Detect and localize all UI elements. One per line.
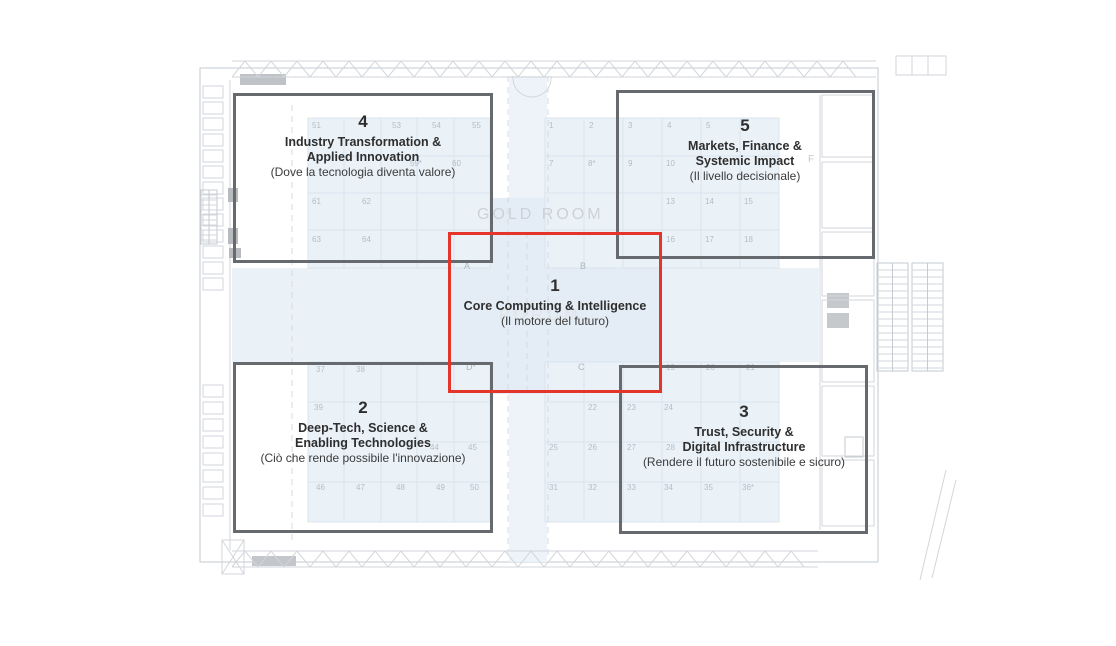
- zone-5-title-1: Markets, Finance &: [625, 139, 865, 154]
- zone-2-number: 2: [232, 398, 494, 418]
- booth-number-label: 31: [549, 484, 558, 492]
- booth-number-label: 8*: [588, 160, 596, 168]
- gold-room-label: GOLD ROOM: [477, 206, 604, 224]
- floor-plan-diagram: GOLD ROOM FORUM F 5153545559*60616263641…: [0, 0, 1116, 646]
- booth-number-label: 26: [588, 444, 597, 452]
- zone-5-number: 5: [625, 116, 865, 136]
- booth-number-label: 2: [589, 122, 593, 130]
- zone-2-title-1: Deep-Tech, Science &: [232, 421, 494, 436]
- zone-4-title-1: Industry Transformation &: [233, 135, 493, 150]
- zone-2-title-2: Enabling Technologies: [232, 436, 494, 451]
- zone-5-label: 5 Markets, Finance & Systemic Impact (Il…: [625, 116, 865, 184]
- zone-4-title-2: Applied Innovation: [233, 150, 493, 165]
- zone-3-title-1: Trust, Security &: [622, 425, 866, 440]
- zone-3-label: 3 Trust, Security & Digital Infrastructu…: [622, 402, 866, 470]
- zone-3-title-2: Digital Infrastructure: [622, 440, 866, 455]
- zone-5-subtitle: (Il livello decisionale): [625, 169, 865, 184]
- zone-4-subtitle: (Dove la tecnologia diventa valore): [233, 165, 493, 180]
- zone-3-number: 3: [622, 402, 866, 422]
- zone-2-subtitle: (Ciò che rende possibile l'innovazione): [232, 451, 494, 466]
- zone-1-label: 1 Core Computing & Intelligence (Il moto…: [440, 276, 670, 329]
- zone-1-title: Core Computing & Intelligence: [440, 299, 670, 314]
- booth-number-label: 1: [549, 122, 553, 130]
- zone-5-title-2: Systemic Impact: [625, 154, 865, 169]
- booth-number-label: 7: [549, 160, 553, 168]
- zone-3-subtitle: (Rendere il futuro sostenibile e sicuro): [622, 455, 866, 470]
- booth-number-label: 25: [549, 444, 558, 452]
- zone-1-number: 1: [440, 276, 670, 296]
- zone-1-subtitle: (Il motore del futuro): [440, 314, 670, 329]
- zone-4-number: 4: [233, 112, 493, 132]
- booth-number-label: 22: [588, 404, 597, 412]
- zone-2-label: 2 Deep-Tech, Science & Enabling Technolo…: [232, 398, 494, 466]
- booth-number-label: 32: [588, 484, 597, 492]
- zone-4-label: 4 Industry Transformation & Applied Inno…: [233, 112, 493, 180]
